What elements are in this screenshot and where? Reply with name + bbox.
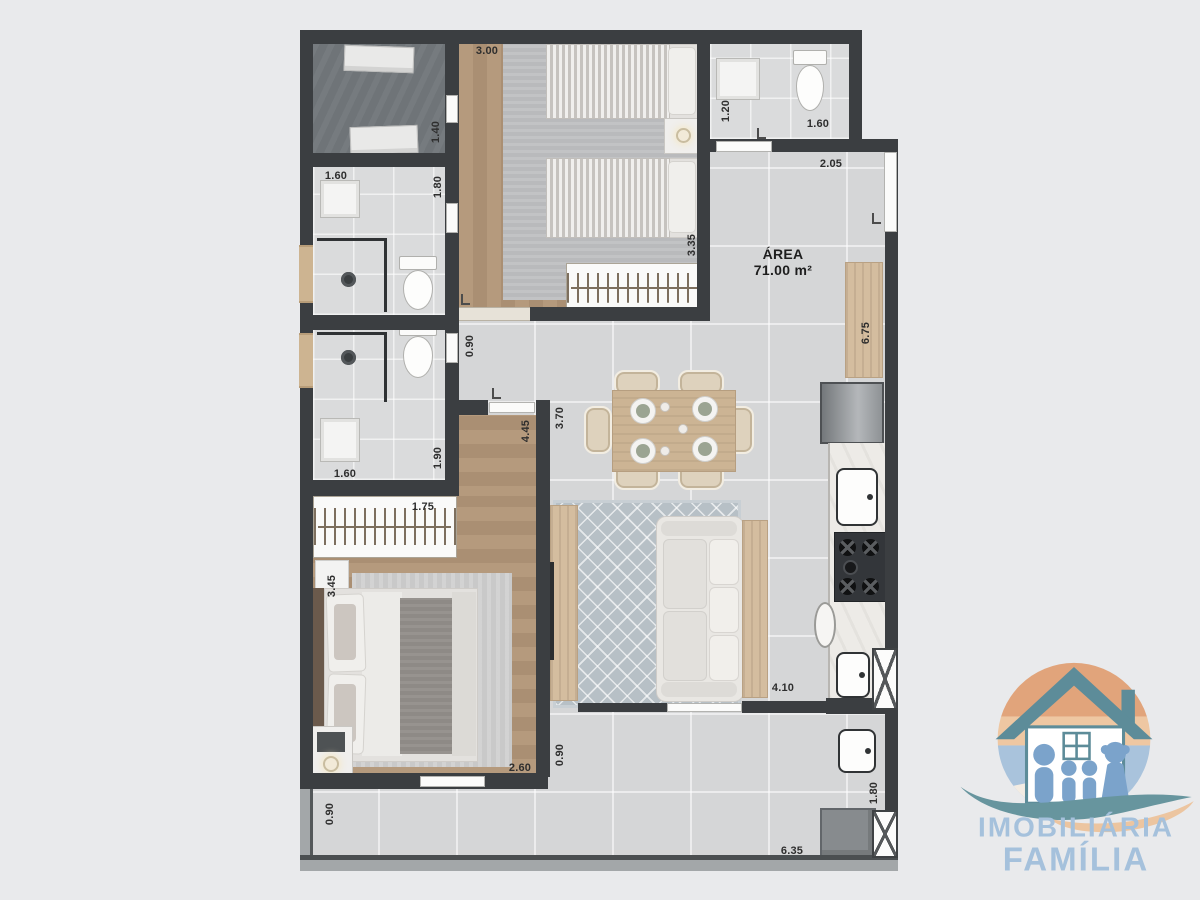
logo-text-line1: IMOBILIÁRIA bbox=[978, 811, 1174, 842]
wall-bath-divider bbox=[300, 315, 459, 330]
sofa-back-cushion-1 bbox=[709, 539, 739, 585]
fridge bbox=[820, 382, 884, 444]
washer-appliance bbox=[344, 45, 415, 73]
wall-parapet bbox=[300, 855, 898, 871]
agency-logo: IMOBILIÁRIA FAMÍLIA bbox=[950, 634, 1198, 892]
counter-bowl bbox=[814, 602, 836, 648]
door-swing-mark-entrybath bbox=[757, 128, 766, 139]
bathroom2-sink bbox=[320, 418, 360, 462]
sofa-back-cushion-3 bbox=[709, 635, 739, 681]
background-patch bbox=[862, 30, 898, 139]
twin-bed-2-pillow bbox=[668, 161, 696, 233]
master-wardrobe bbox=[313, 496, 457, 558]
dryer-appliance bbox=[350, 125, 419, 155]
entry-bathroom-sink bbox=[716, 58, 760, 100]
logo-text-line2: FAMÍLIA bbox=[1003, 840, 1150, 877]
dimension-label: 0.90 bbox=[464, 335, 476, 357]
wall-master-right bbox=[536, 400, 550, 777]
dimension-label: 1.60 bbox=[807, 118, 829, 130]
sofa-back-cushion-2 bbox=[709, 587, 739, 633]
burner-3 bbox=[843, 560, 858, 575]
wall-right bbox=[885, 139, 898, 866]
burner-5 bbox=[862, 578, 879, 595]
entry-toilet-tank bbox=[793, 50, 827, 65]
dimension-label: 6.35 bbox=[781, 845, 803, 857]
door-swing-mark-master bbox=[492, 388, 501, 399]
kitchen-sink bbox=[836, 468, 878, 526]
stove bbox=[834, 532, 886, 602]
dimension-label: 1.60 bbox=[325, 170, 347, 182]
plate-4 bbox=[692, 436, 718, 462]
bathroom1-door bbox=[446, 203, 458, 233]
twin-bed-1-pillow bbox=[668, 47, 696, 115]
bathroom2-window bbox=[299, 333, 313, 388]
dimension-label: 3.35 bbox=[686, 234, 698, 256]
sofa bbox=[656, 516, 744, 702]
kitchen-sideboard bbox=[845, 262, 883, 378]
cup-2 bbox=[678, 424, 688, 434]
wall-living-balcony-2 bbox=[742, 701, 826, 713]
sofa-armrest-top bbox=[661, 521, 737, 536]
sofa-seat-cushion-1 bbox=[663, 539, 707, 609]
floorplan-scene: ÁREA 71.00 m² 3.001.401.601.801.201.602.… bbox=[0, 0, 1200, 900]
burner-4 bbox=[839, 578, 856, 595]
bathroom2-shower bbox=[317, 332, 387, 402]
twin-bed-2-duvet bbox=[546, 158, 670, 238]
dimension-label: 1.80 bbox=[432, 176, 444, 198]
plate-1 bbox=[630, 398, 656, 424]
dimension-label: 3.00 bbox=[476, 45, 498, 57]
area-title: ÁREA bbox=[763, 246, 804, 262]
service-door bbox=[446, 95, 458, 123]
dining-table bbox=[612, 390, 736, 472]
door-swing-mark-entry bbox=[872, 213, 881, 224]
dimension-label: 1.80 bbox=[868, 782, 880, 804]
kitchen-prep-sink bbox=[836, 652, 870, 698]
dimension-label: 1.60 bbox=[334, 468, 356, 480]
bedroom2-wardrobe bbox=[566, 263, 706, 313]
dimension-label: 3.45 bbox=[326, 575, 338, 597]
wall-living-balcony-1 bbox=[578, 703, 667, 712]
cup-3 bbox=[660, 446, 670, 456]
wall-entrybath-right bbox=[849, 30, 862, 152]
master-door bbox=[489, 402, 535, 413]
master-balcony-door bbox=[420, 776, 485, 787]
dimension-label: 0.90 bbox=[554, 744, 566, 766]
wall-bedroom2-right bbox=[697, 30, 710, 321]
tv-console bbox=[550, 505, 578, 701]
wall-bath2-bottom bbox=[300, 480, 459, 496]
bathroom2-showerhead-icon bbox=[341, 350, 356, 365]
dimension-label: 1.40 bbox=[430, 121, 442, 143]
wall-service-bottom bbox=[300, 153, 459, 167]
bathroom1-window bbox=[299, 245, 313, 303]
duct-shaft-1 bbox=[872, 648, 898, 710]
dimension-label: 1.90 bbox=[432, 447, 444, 469]
twin-bed-1-duvet bbox=[546, 44, 670, 119]
dimension-label: 3.70 bbox=[554, 407, 566, 429]
entrybath-door bbox=[716, 141, 772, 152]
dimension-label: 4.10 bbox=[772, 682, 794, 694]
bathroom1-sink bbox=[320, 180, 360, 218]
area-label: ÁREA 71.00 m² bbox=[754, 246, 812, 278]
wall-balcony-left bbox=[300, 777, 313, 865]
duct-shaft-2 bbox=[872, 810, 898, 858]
door-swing-mark-bedroom2 bbox=[461, 294, 470, 305]
dimension-label: 1.75 bbox=[412, 501, 434, 513]
plate-2 bbox=[692, 396, 718, 422]
dimension-label: 4.45 bbox=[520, 420, 532, 442]
bedroom2-lamp bbox=[676, 128, 691, 143]
dimension-label: 0.90 bbox=[324, 803, 336, 825]
dimension-label: 2.05 bbox=[820, 158, 842, 170]
terrace-sink bbox=[838, 729, 876, 773]
bedroom2-door bbox=[459, 307, 530, 321]
dimension-label: 2.60 bbox=[509, 762, 531, 774]
plate-3 bbox=[630, 438, 656, 464]
terrace-barbecue bbox=[820, 808, 876, 858]
dimension-label: 6.75 bbox=[860, 322, 872, 344]
bathroom2-door bbox=[446, 333, 458, 363]
sofa-side-console bbox=[742, 520, 768, 698]
entry-door bbox=[884, 152, 897, 232]
wall-master-door-stub bbox=[459, 400, 488, 415]
burner-1 bbox=[839, 539, 856, 556]
cup-1 bbox=[660, 402, 670, 412]
master-lamp bbox=[323, 756, 339, 772]
master-nightstand-item bbox=[317, 732, 345, 752]
bathroom1-toilet-tank bbox=[399, 256, 437, 270]
area-value: 71.00 m² bbox=[754, 262, 812, 278]
dining-chair-left bbox=[584, 406, 612, 454]
living-sliding-door bbox=[667, 703, 742, 712]
sofa-seat-cushion-2 bbox=[663, 611, 707, 681]
wall-left bbox=[300, 30, 313, 777]
master-bed-sheet bbox=[362, 592, 402, 756]
master-bed-foot-fold bbox=[452, 592, 476, 756]
dimension-label: 1.20 bbox=[720, 100, 732, 122]
burner-2 bbox=[862, 539, 879, 556]
sofa-armrest-bottom bbox=[661, 682, 737, 697]
master-pillow-1-inner bbox=[334, 604, 356, 660]
bathroom1-showerhead-icon bbox=[341, 272, 356, 287]
wall-top bbox=[300, 30, 862, 44]
